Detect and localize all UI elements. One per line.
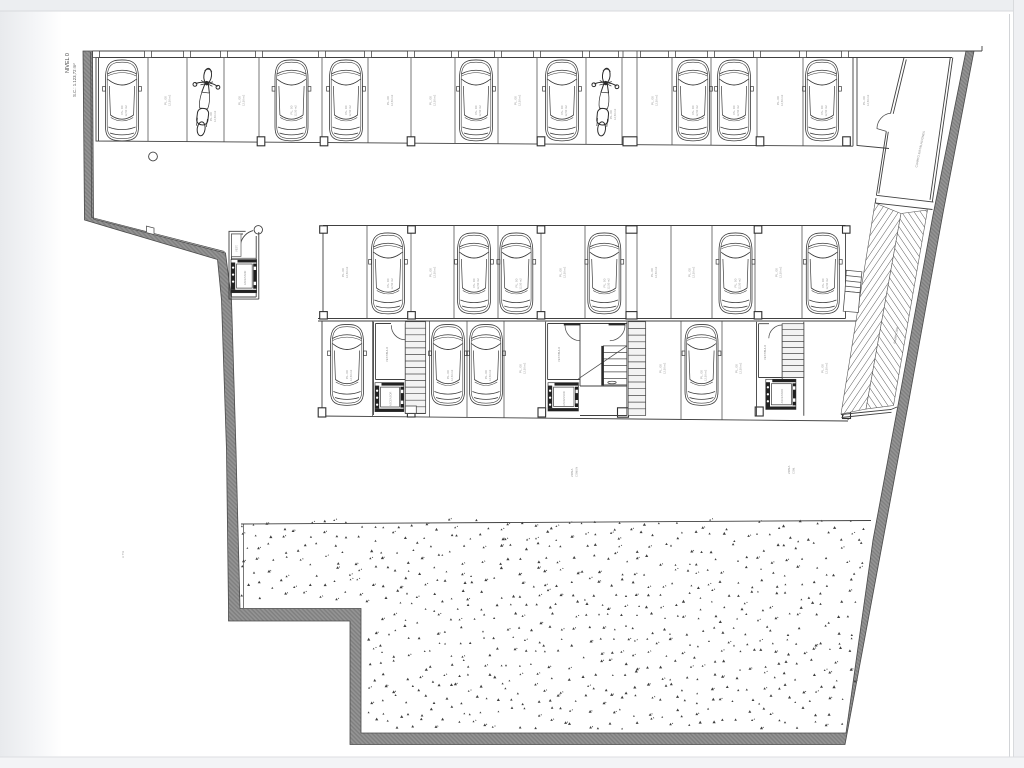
svg-text:VESTIBULO: VESTIBULO: [557, 347, 561, 362]
svg-text:PL. 00: PL. 00: [164, 96, 168, 105]
svg-text:PL. 00: PL. 00: [609, 110, 613, 119]
svg-text:12,50 m2: 12,50 m2: [390, 94, 394, 106]
svg-text:PL. 00: PL. 00: [559, 268, 563, 277]
svg-text:12,50 m2: 12,50 m2: [433, 94, 437, 106]
svg-text:12,50 m2: 12,50 m2: [242, 94, 246, 106]
svg-text:12,50 m2: 12,50 m2: [433, 266, 437, 278]
svg-text:ZONA: ZONA: [570, 469, 574, 477]
svg-text:PL. 00: PL. 00: [341, 268, 345, 277]
svg-text:PL. 00: PL. 00: [429, 96, 433, 105]
svg-text:12,50 m2: 12,50 m2: [692, 266, 696, 278]
svg-text:PL. 00: PL. 00: [650, 268, 654, 277]
svg-text:PL. 00: PL. 00: [238, 96, 242, 105]
svg-text:PL. 00: PL. 00: [821, 364, 825, 373]
svg-text:VESTIBULO: VESTIBULO: [763, 345, 767, 360]
svg-text:A 7%: A 7%: [121, 551, 125, 558]
svg-text:12,50 m2: 12,50 m2: [663, 362, 667, 374]
svg-text:VESTIBULO: VESTIBULO: [385, 347, 389, 362]
svg-text:PL. 00: PL. 00: [776, 96, 780, 105]
svg-text:12,50 m2: 12,50 m2: [213, 110, 217, 122]
svg-text:12,50 m2: 12,50 m2: [866, 94, 870, 106]
svg-text:12,50 m2: 12,50 m2: [780, 94, 784, 106]
svg-text:12,50 m2: 12,50 m2: [563, 266, 567, 278]
svg-text:12,50 m2: 12,50 m2: [345, 266, 349, 278]
svg-text:12,50 m2: 12,50 m2: [613, 108, 617, 120]
svg-text:ASCENSOR: ASCENSOR: [562, 391, 566, 406]
svg-text:ZONA: ZONA: [787, 466, 791, 474]
svg-text:PL. 00: PL. 00: [862, 96, 866, 105]
svg-text:S.C.: 1.123,72 m²: S.C.: 1.123,72 m²: [72, 63, 77, 97]
svg-text:ASCENSOR: ASCENSOR: [243, 270, 247, 285]
svg-text:12,50 m2: 12,50 m2: [739, 362, 743, 374]
svg-text:PL. 00: PL. 00: [775, 268, 779, 277]
svg-text:PL. 00: PL. 00: [651, 96, 655, 105]
svg-text:PL. 00: PL. 00: [429, 268, 433, 277]
svg-text:12,50 m2: 12,50 m2: [654, 266, 658, 278]
svg-text:12,50 m2: 12,50 m2: [168, 94, 172, 106]
svg-text:PL. 00: PL. 00: [735, 364, 739, 373]
svg-text:PL. 00: PL. 00: [209, 112, 213, 121]
svg-text:12,50 m2: 12,50 m2: [655, 94, 659, 106]
svg-text:ASCENSOR: ASCENSOR: [388, 391, 392, 406]
svg-text:PL. 00: PL. 00: [688, 268, 692, 277]
svg-text:PL. 00: PL. 00: [659, 364, 663, 373]
svg-text:12,50 m2: 12,50 m2: [779, 266, 783, 278]
svg-text:12,50 m2: 12,50 m2: [523, 362, 527, 374]
svg-text:ASCENSOR: ASCENSOR: [780, 389, 784, 404]
svg-text:NIVEL 0: NIVEL 0: [65, 53, 71, 73]
svg-text:PL. 00: PL. 00: [386, 96, 390, 105]
svg-text:COMUN: COMUN: [575, 467, 579, 477]
svg-text:12,50 m2: 12,50 m2: [825, 362, 829, 374]
svg-text:PL. 00: PL. 00: [519, 364, 523, 373]
svg-text:COM.: COM.: [792, 467, 796, 474]
svg-text:VEST.: VEST.: [235, 245, 239, 252]
svg-text:12,50 m2: 12,50 m2: [518, 94, 522, 106]
svg-text:PL. 00: PL. 00: [514, 96, 518, 105]
